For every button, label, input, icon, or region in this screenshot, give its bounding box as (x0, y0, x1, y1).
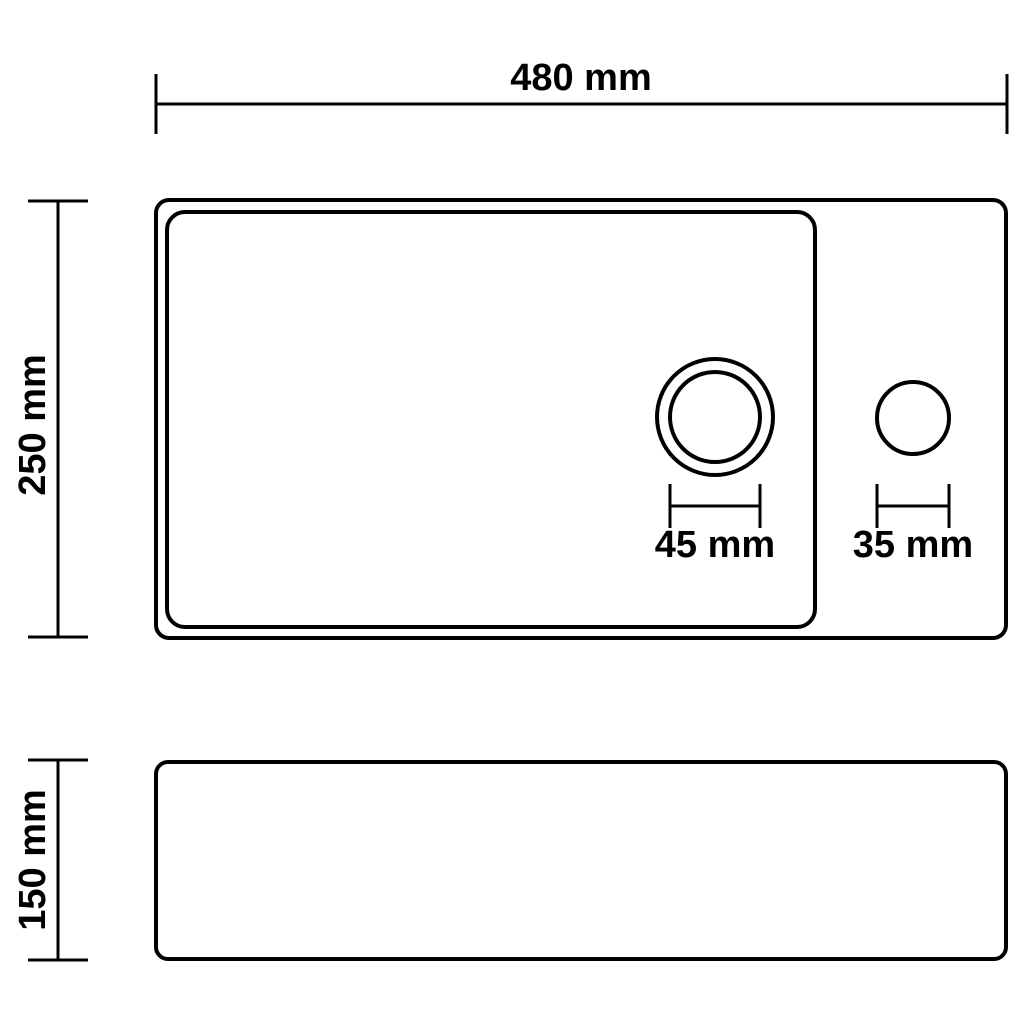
tap-dimension-label: 35 mm (853, 524, 973, 566)
tap-hole-dimension: 35 mm (853, 484, 973, 566)
width-dimension: 480 mm (156, 57, 1007, 134)
drain-hole-outer-circle (657, 359, 773, 475)
tap-hole-circle (877, 382, 949, 454)
front-view-body (156, 762, 1006, 959)
drain-hole-inner-circle (670, 372, 760, 462)
front-view (156, 762, 1006, 959)
washbasin-dimension-drawing: 480 mm 45 mm 35 mm (0, 0, 1024, 1024)
drain-hole-dimension: 45 mm (655, 484, 775, 566)
height-dimension: 150 mm (12, 760, 88, 960)
plan-view: 45 mm 35 mm (156, 200, 1006, 638)
depth-dimension-label: 250 mm (12, 354, 54, 496)
height-dimension-label: 150 mm (12, 789, 54, 931)
depth-dimension: 250 mm (12, 201, 88, 637)
width-dimension-label: 480 mm (510, 57, 652, 99)
drain-dimension-label: 45 mm (655, 524, 775, 566)
drawing-svg: 480 mm 45 mm 35 mm (0, 0, 1024, 1024)
